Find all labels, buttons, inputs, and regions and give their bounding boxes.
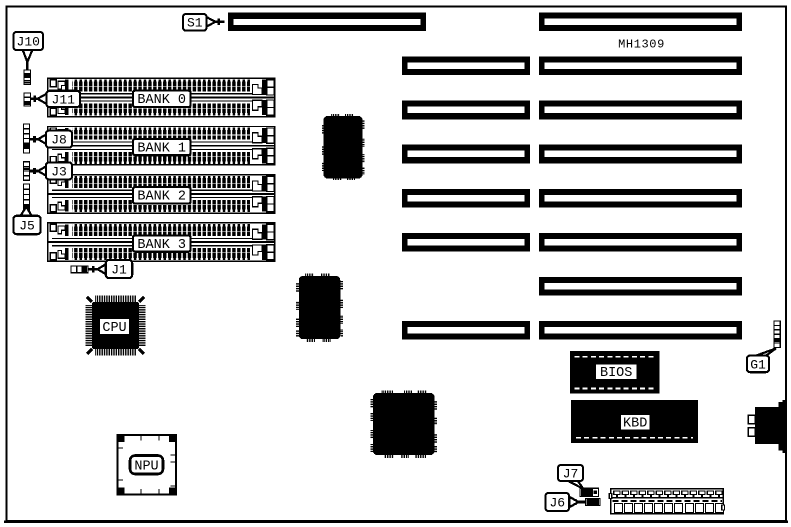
svg-text:BIOS: BIOS — [600, 366, 632, 381]
svg-text:J3: J3 — [51, 164, 67, 179]
svg-text:J10: J10 — [17, 34, 40, 49]
svg-text:J5: J5 — [19, 218, 35, 233]
svg-text:MH1309: MH1309 — [618, 38, 665, 52]
svg-text:BANK 0: BANK 0 — [137, 93, 186, 108]
svg-text:G1: G1 — [750, 357, 766, 372]
svg-text:S1: S1 — [187, 16, 203, 31]
svg-text:NPU: NPU — [134, 460, 158, 475]
svg-text:CPU: CPU — [102, 321, 126, 336]
svg-text:J6: J6 — [549, 495, 565, 510]
svg-text:BANK 2: BANK 2 — [137, 190, 186, 205]
svg-text:KBD: KBD — [623, 416, 647, 431]
svg-text:J8: J8 — [51, 133, 67, 148]
svg-text:J1: J1 — [111, 262, 127, 277]
svg-text:BANK 3: BANK 3 — [137, 238, 186, 253]
svg-text:J7: J7 — [563, 466, 579, 481]
svg-text:J11: J11 — [52, 92, 76, 107]
svg-text:BANK 1: BANK 1 — [137, 141, 186, 156]
